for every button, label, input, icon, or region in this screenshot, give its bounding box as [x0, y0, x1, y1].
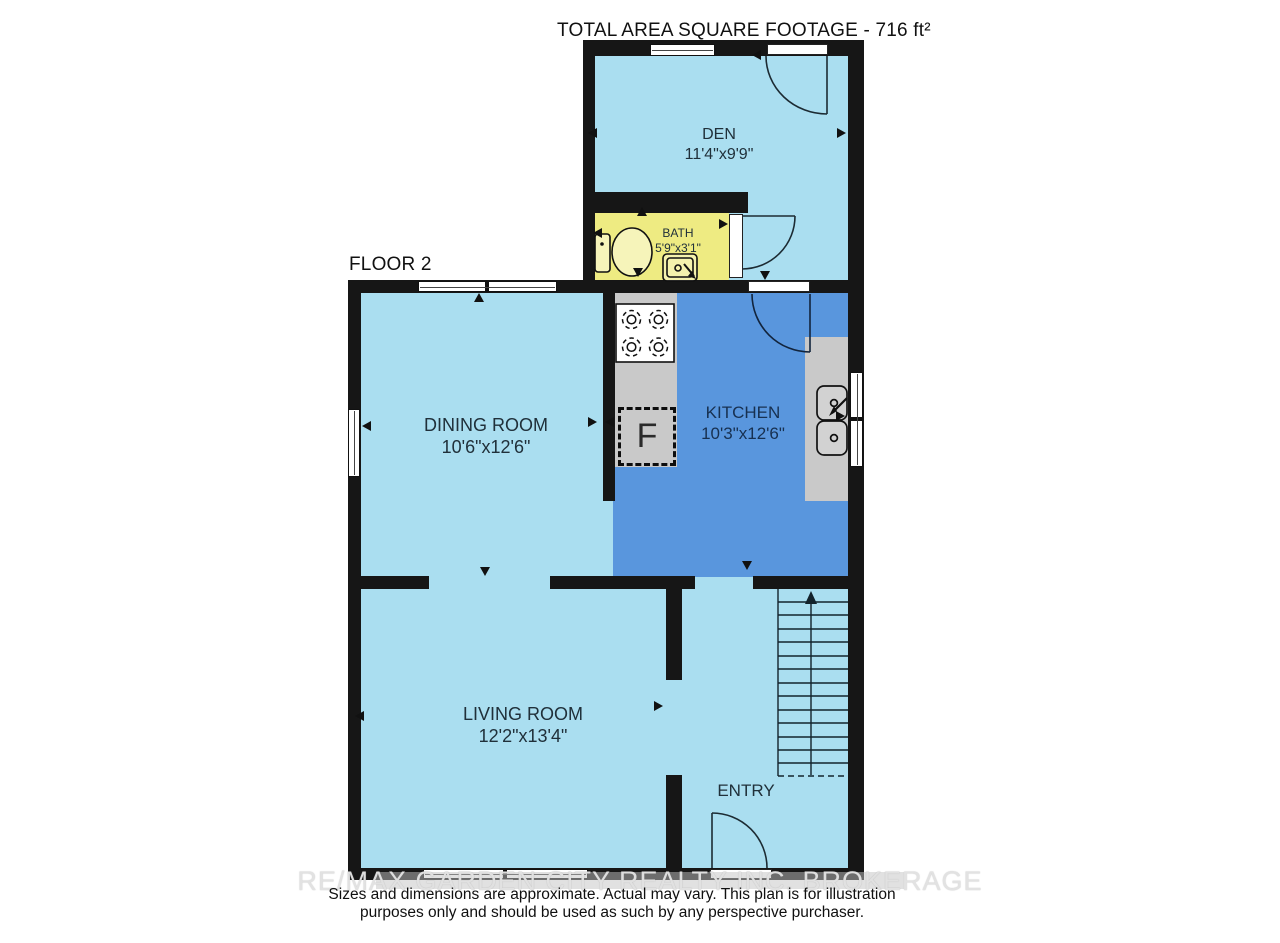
den-window	[650, 44, 715, 56]
refrigerator-icon: F	[618, 407, 676, 466]
dimension-arrow	[837, 128, 846, 138]
wall-dining-kitchen	[603, 293, 615, 501]
wall-den-bath	[583, 192, 748, 213]
den-door-opening	[767, 44, 828, 55]
dimension-arrow	[474, 293, 484, 302]
page-title: TOTAL AREA SQUARE FOOTAGE - 716 ft²	[557, 20, 931, 42]
dimension-arrow	[588, 417, 597, 427]
wall-dining-living-left	[361, 576, 429, 589]
dimension-arrow	[637, 207, 647, 216]
wall-living-entry-upper	[666, 589, 682, 680]
dimension-arrow	[362, 421, 371, 431]
wall-kitchen-entry	[753, 576, 863, 589]
dimension-arrow	[633, 268, 643, 277]
den-name: DEN	[685, 125, 754, 145]
dimension-arrow	[742, 561, 752, 570]
wall-dining-living-right	[550, 576, 695, 589]
dining-label: DINING ROOM 10'6"x12'6"	[424, 415, 548, 459]
dimension-arrow	[719, 219, 728, 229]
kitchen-name: KITCHEN	[701, 403, 785, 424]
refrigerator-label: F	[637, 417, 658, 456]
floor-label: FLOOR 2	[349, 254, 432, 276]
dimension-arrow	[752, 50, 761, 60]
floorplan-canvas: TOTAL AREA SQUARE FOOTAGE - 716 ft² FLOO…	[0, 0, 1280, 943]
wall-living-entry-lower	[666, 775, 682, 868]
window-divider	[485, 282, 489, 291]
living-dims: 12'2"x13'4"	[463, 726, 583, 748]
wall-left	[348, 280, 361, 880]
window-divider	[851, 417, 862, 421]
living-label: LIVING ROOM 12'2"x13'4"	[463, 704, 583, 748]
living-name: LIVING ROOM	[463, 704, 583, 726]
bath-name: BATH	[655, 226, 701, 241]
entry-name: ENTRY	[717, 781, 774, 802]
dimension-arrow	[355, 711, 364, 721]
kitchen-label: KITCHEN 10'3"x12'6"	[701, 403, 785, 444]
den-dims: 11'4"x9'9"	[685, 145, 754, 165]
dining-window	[418, 281, 557, 292]
dining-side-window	[348, 409, 360, 477]
disclaimer-line-2: purposes only and should be used as such…	[360, 904, 864, 922]
dimension-arrow	[588, 128, 597, 138]
wall-den-left	[583, 40, 595, 281]
dining-name: DINING ROOM	[424, 415, 548, 437]
dimension-arrow	[605, 417, 614, 427]
bath-dims: 5'9"x3'1"	[655, 241, 701, 256]
dimension-arrow	[760, 271, 770, 280]
entry-label: ENTRY	[717, 781, 774, 802]
kitchen-dims: 10'3"x12'6"	[701, 424, 785, 445]
dimension-arrow	[480, 567, 490, 576]
dimension-arrow	[654, 701, 663, 711]
kitchen-side-window	[850, 372, 863, 467]
kitchen-door-opening	[748, 281, 810, 292]
bath-door	[729, 214, 743, 278]
dimension-arrow	[593, 228, 602, 238]
dining-dims: 10'6"x12'6"	[424, 437, 548, 459]
bath-label: BATH 5'9"x3'1"	[655, 226, 701, 255]
dimension-arrow	[836, 411, 845, 421]
den-label: DEN 11'4"x9'9"	[685, 125, 754, 164]
disclaimer-line-1: Sizes and dimensions are approximate. Ac…	[328, 886, 895, 904]
